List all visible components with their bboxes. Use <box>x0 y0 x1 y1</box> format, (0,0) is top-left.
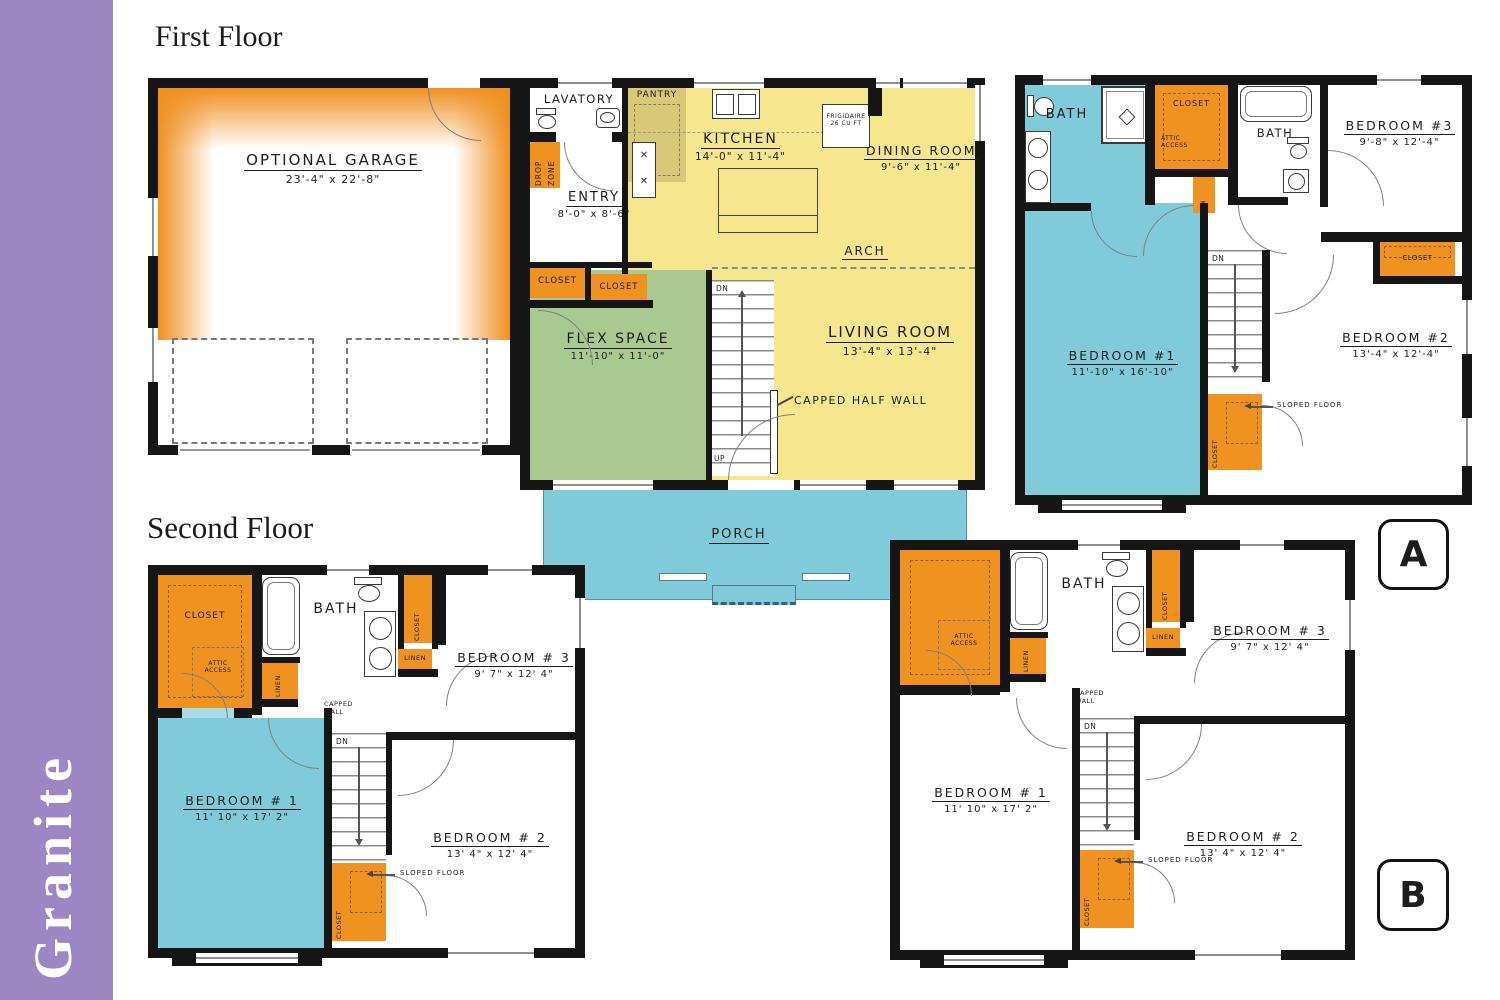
garage-door-sill <box>180 449 310 451</box>
wall <box>386 732 575 740</box>
closet-label: CLOSET <box>414 577 422 641</box>
second-floor-title: Second Floor <box>147 510 313 546</box>
linen-closet: LINEN <box>398 649 432 669</box>
wall <box>1373 242 1380 278</box>
variant-a-badge: A <box>1378 519 1449 590</box>
living-room-label: LIVING ROOM <box>826 323 954 343</box>
master-closet: CLOSET ATTIC ACCESS <box>1155 85 1228 169</box>
bedroom3-dims: 9' 7" x 12' 4" <box>454 669 574 680</box>
floorplan-sheet: Granite First Floor Second Floor PORCH O… <box>0 0 1500 1000</box>
arch-label: ARCH <box>842 244 887 260</box>
window <box>800 480 866 490</box>
sloped-floor-note: SLOPED FLOOR <box>1277 401 1342 409</box>
toilet <box>358 585 380 602</box>
window <box>894 480 958 490</box>
wall <box>1238 197 1288 205</box>
linen-closet: LINEN <box>1146 628 1180 648</box>
sloped-floor-note: SLOPED FLOOR <box>400 869 465 877</box>
stairs-second-floor: DN <box>1080 718 1134 846</box>
wall <box>1145 85 1155 205</box>
bedroom2-label: BEDROOM # 2 <box>431 830 549 847</box>
wall <box>438 575 446 645</box>
closet-label: CLOSET <box>530 276 585 286</box>
garage-door-bay <box>172 338 314 444</box>
garage-label: OPTIONAL GARAGE <box>244 151 422 171</box>
wall <box>622 132 628 278</box>
window <box>1195 950 1281 960</box>
bedroom3-dims: 9' 7" x 12' 4" <box>1200 642 1340 653</box>
drop-zone-label: DROP ZONE <box>532 144 558 186</box>
wall <box>252 575 262 715</box>
wall <box>1228 85 1238 205</box>
bedroom1-dims: 11' 10" x 17' 2" <box>916 804 1066 815</box>
counter-edge <box>628 132 824 133</box>
toilet <box>1106 560 1128 577</box>
wall <box>1200 203 1208 495</box>
stairs-closet-door-arc <box>386 875 427 916</box>
double-vanity <box>1112 586 1144 652</box>
bedroom3-label: BEDROOM # 3 <box>455 650 573 667</box>
toilet <box>354 577 382 585</box>
pantry-label: PANTRY <box>628 90 686 101</box>
drop-zone: DROP ZONE <box>530 142 560 188</box>
dining-room-label: DINING ROOM <box>864 143 979 160</box>
closet-label: CLOSET <box>158 611 252 621</box>
stairs-second-floor: DN <box>332 733 386 861</box>
bedroom3-closet: CLOSET <box>1380 242 1455 276</box>
stairs-up-label: UP <box>714 454 725 463</box>
wall <box>324 708 332 948</box>
dining-room-dims: 9'-6" x 11'-4" <box>864 162 978 173</box>
fridge-size: 26 CU FT <box>823 120 869 127</box>
bedroom2-dims: 13'-4" x 12'-4" <box>1330 349 1462 360</box>
kitchen-dims: 14'-0" x 11'-4" <box>658 151 823 163</box>
porch-label: PORCH <box>709 527 768 544</box>
window <box>975 85 985 141</box>
bedroom3-closet: CLOSET <box>1152 550 1180 622</box>
window <box>1462 300 1472 354</box>
garage-door-sill <box>352 449 480 451</box>
stairs-dn-label: DN <box>336 737 348 746</box>
bedroom3-label: BEDROOM #3 <box>1344 118 1456 135</box>
variant-b-badge: B <box>1377 859 1449 931</box>
window <box>1462 418 1472 466</box>
wall <box>386 733 392 855</box>
window <box>1345 600 1355 650</box>
shower <box>1101 86 1149 144</box>
closet-label: CLOSET <box>591 282 647 292</box>
bedroom1-label: BEDROOM # 1 <box>183 793 301 810</box>
kitchen-island <box>718 168 818 216</box>
entry-closet: CLOSET <box>591 274 647 302</box>
toilet <box>1287 137 1309 144</box>
first-floor-title: First Floor <box>155 20 283 54</box>
second-floor-b-outline: ATTIC ACCESS LINEN BATH CLOSET LINEN <box>890 540 1355 960</box>
range-stove: ✕✕ <box>632 142 656 198</box>
window <box>903 78 967 88</box>
linen-closet: LINEN <box>262 663 298 699</box>
bath2-door-arc <box>1238 205 1287 254</box>
stairs-closet-door-arc <box>1262 405 1303 446</box>
bedroom1-label: BEDROOM # 1 <box>932 785 1050 802</box>
wall <box>398 669 438 677</box>
linen-closet: LINEN <box>1010 638 1046 674</box>
bedroom3-door-arc <box>1328 150 1384 206</box>
refrigerator: FRIGIDAIRE 26 CU FT <box>822 104 870 148</box>
porch-railing <box>802 573 850 581</box>
closet-label: CLOSET <box>1212 400 1220 468</box>
second-floor-a-outline: BATH CLOSET ATTIC ACCESS LIN BATH <box>1015 75 1472 505</box>
bedroom2-dims: 13' 4" x 12' 4" <box>408 849 572 860</box>
toilet <box>1290 144 1307 159</box>
wall <box>530 300 653 308</box>
lavatory-door-arc <box>564 142 613 191</box>
wall <box>1262 250 1270 382</box>
window <box>488 565 532 575</box>
stairs-dn-label: DN <box>1212 254 1224 263</box>
stairs-arrow <box>738 290 746 297</box>
window <box>876 78 900 88</box>
second-floor-outline: CLOSET ATTIC ACCESS LINEN BATH CLOSET <box>148 565 585 958</box>
arch-line <box>712 267 975 269</box>
window <box>553 480 653 490</box>
kitchen-island <box>718 214 818 233</box>
wall <box>1134 718 1140 840</box>
wall <box>1320 85 1328 207</box>
bathtub <box>262 577 300 655</box>
fridge-brand: FRIGIDAIRE <box>823 113 869 120</box>
bedroom2-door-arc <box>1146 724 1202 780</box>
window <box>1043 75 1091 85</box>
wall <box>1146 648 1186 656</box>
wall <box>1134 716 1345 724</box>
bedroom1-label: BEDROOM #1 <box>1067 348 1179 365</box>
window <box>944 955 1044 965</box>
bedroom1-door-arc <box>1016 698 1067 749</box>
wall <box>1000 550 1010 692</box>
window <box>448 948 534 958</box>
wall <box>1155 169 1228 177</box>
window <box>327 565 369 575</box>
bedroom1-dims: 11'-10" x 16'-10" <box>1050 367 1195 378</box>
kitchen-sink <box>712 89 760 119</box>
sink <box>596 108 620 128</box>
toilet <box>536 108 556 115</box>
window <box>694 78 764 88</box>
closet-label: CLOSET <box>1084 856 1092 926</box>
wall <box>1321 232 1462 242</box>
stairs-dn-label: DN <box>716 284 728 293</box>
wall <box>1010 674 1046 682</box>
living-room-dims: 13'-4" x 13'-4" <box>790 345 990 358</box>
linen-label: LINEN <box>1023 640 1031 672</box>
bedroom1-dims: 11' 10" x 17' 2" <box>166 812 318 823</box>
wall <box>1373 276 1462 284</box>
stairs-second-floor: DN <box>1208 250 1262 390</box>
capped-half-wall-label: CAPPED HALF WALL <box>794 394 927 407</box>
bedroom3-dims: 9'-8" x 12'-4" <box>1337 137 1462 148</box>
bedroom2-label: BEDROOM # 2 <box>1184 829 1302 846</box>
wall <box>1186 550 1194 622</box>
bedroom3-closet: CLOSET <box>404 575 432 643</box>
bedroom3-label: BEDROOM # 3 <box>1211 623 1329 640</box>
garage-dims: 23'-4" x 22'-8" <box>188 173 478 186</box>
closet-label: CLOSET <box>336 869 344 939</box>
door-opening <box>728 480 794 490</box>
stairs-dn-label: DN <box>1084 722 1096 731</box>
bedroom2-door-arc <box>1275 255 1334 314</box>
double-vanity <box>1025 131 1051 203</box>
toilet <box>538 115 556 129</box>
double-vanity <box>364 611 396 677</box>
window <box>1377 75 1421 85</box>
bath-label: BATH <box>1052 576 1116 592</box>
bath-label: BATH <box>304 601 368 617</box>
window <box>558 78 612 88</box>
entry-closet: CLOSET <box>530 268 585 298</box>
bedroom2-label: BEDROOM #2 <box>1340 330 1452 347</box>
attic-access: ATTIC ACCESS <box>1161 135 1188 149</box>
window <box>1240 540 1284 550</box>
garage-outline: OPTIONAL GARAGE 23'-4" x 22'-8" <box>148 78 520 455</box>
toilet <box>1027 95 1034 117</box>
window <box>1062 500 1162 510</box>
garage-door-bay <box>346 338 488 444</box>
wall <box>622 88 628 132</box>
door-opening <box>428 78 480 88</box>
bedroom2-door-arc <box>398 740 454 796</box>
window <box>148 198 158 256</box>
bathtub <box>1240 86 1312 122</box>
window <box>1078 540 1120 550</box>
wall <box>1072 688 1080 950</box>
bath-label: BATH <box>1037 107 1097 122</box>
first-floor-outline: PANTRY LAVATORY DROP ZONE ENTRY 8'-0" x … <box>520 78 985 490</box>
bedroom2-dims: 13' 4" x 12' 4" <box>1158 848 1328 859</box>
closet-label: CLOSET <box>1162 552 1170 620</box>
stairs-closet-door-arc <box>1134 862 1175 903</box>
porch-railing <box>659 573 707 581</box>
lavatory-label: LAVATORY <box>532 92 626 106</box>
linen-label: LINEN <box>275 665 283 697</box>
window <box>575 598 585 648</box>
linen-label: LINEN <box>1146 634 1180 642</box>
wall <box>868 88 882 116</box>
bathtub <box>1010 552 1048 630</box>
plan-name: Granite <box>22 700 84 980</box>
wall <box>262 699 298 707</box>
entry-label: ENTRY <box>566 190 622 207</box>
wall <box>1025 203 1091 211</box>
kitchen-label: KITCHEN <box>701 131 780 149</box>
window <box>196 953 298 963</box>
sink <box>1283 169 1309 193</box>
closet-label: CLOSET <box>1155 99 1228 108</box>
linen-label: LINEN <box>398 655 432 663</box>
wall <box>530 132 556 142</box>
porch-steps <box>712 585 796 605</box>
garage-glow-left <box>158 88 214 340</box>
window <box>148 328 158 382</box>
toilet <box>1102 552 1130 560</box>
brand-sidebar: Granite <box>0 0 113 1000</box>
